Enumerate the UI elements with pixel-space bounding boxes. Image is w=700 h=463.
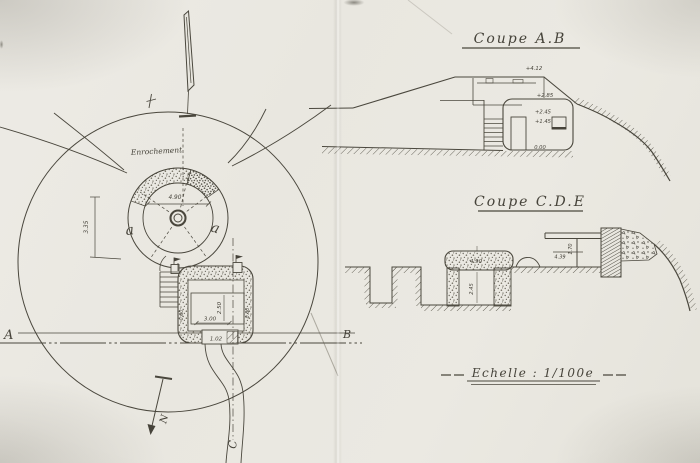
coupe-ab-view <box>309 48 670 181</box>
glacis-radius-dimension <box>90 197 121 259</box>
room-width-label: 3.00 <box>204 317 217 323</box>
drawing-canvas: 4.90 3.35 a a Enrochement <box>0 0 700 463</box>
elevation-door: +2.45 <box>535 110 552 116</box>
paper-creases <box>311 0 452 376</box>
plan-view: 4.90 3.35 a a Enrochement <box>0 11 362 463</box>
scanned-fortification-drawing: 4.90 3.35 a a Enrochement <box>0 0 700 463</box>
chamber-height-label: 2.45 <box>469 283 475 295</box>
beam-length-label: 4.39 <box>554 255 565 261</box>
scale-label: Echelle : 1/100e <box>471 366 594 380</box>
slab-width-label: 4.90 <box>470 259 483 265</box>
flag-marker-right <box>233 255 243 273</box>
coupe-ab-title: Coupe A.B <box>474 31 567 47</box>
flag-marker-left <box>171 258 181 274</box>
riprap <box>621 229 657 261</box>
coupe-cde-title: Coupe C.D.E <box>474 194 586 210</box>
section-point-a: A <box>3 328 13 343</box>
casemate-section <box>445 246 513 306</box>
terrain-right-ab <box>575 100 670 181</box>
wall-left-label: 0.80 <box>179 310 185 321</box>
glacis-circle <box>18 112 318 412</box>
pit-diameter-label: 4.90 <box>169 195 182 201</box>
elevation-window: +1.45 <box>535 119 552 125</box>
retaining-wall <box>601 228 621 277</box>
door-section <box>511 117 526 150</box>
section-point-c: C <box>226 439 240 449</box>
elevation-crest: +4.12 <box>526 66 543 72</box>
terrain-wings <box>0 105 331 173</box>
shelter-section <box>484 99 573 150</box>
range-mast <box>179 11 196 117</box>
section-point-b: B <box>342 328 351 341</box>
elevation-platform: +2.85 <box>537 93 554 99</box>
pit-letter-right: a <box>209 220 222 238</box>
north-arrow <box>148 377 173 436</box>
room-depth-label: 2.50 <box>217 301 223 314</box>
terrain-right-cde <box>654 243 694 311</box>
shelter-plan <box>171 255 253 344</box>
stairs-section <box>484 119 503 146</box>
north-label: N <box>158 412 171 425</box>
coupe-cde-view <box>345 211 694 311</box>
stairs-plan <box>160 256 178 307</box>
pit-letter-left: a <box>125 222 135 239</box>
ground-hump <box>516 257 540 267</box>
survey-mark <box>147 94 157 108</box>
post-height-label: 1.70 <box>568 243 574 254</box>
elevation-floor: 0.00 <box>534 145 546 151</box>
entry-width-label: 1.02 <box>210 337 223 343</box>
wall-right-label: 0.80 <box>245 308 251 319</box>
glacis-radius-label: 3.35 <box>84 220 90 233</box>
gun-pedestal <box>171 211 186 226</box>
enrochement-label: Enrochement <box>130 145 184 157</box>
